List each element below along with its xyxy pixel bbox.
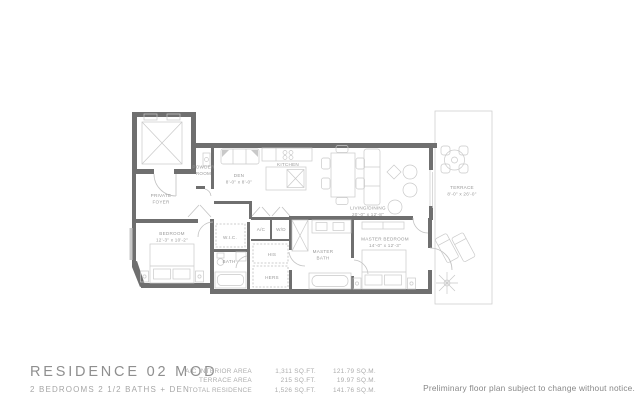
master-bathtub: [309, 273, 351, 289]
area-row: TOTAL RESIDENCE 1,526 SQ.FT. 141.76 SQ.M…: [178, 386, 376, 395]
den-area: DEN 8'-0" x 8'-0": [221, 149, 259, 185]
terrace-plant-icon: [436, 272, 458, 294]
area-sqm: 19.97 SQ.M.: [316, 376, 376, 385]
terrace-door-arc: [430, 248, 452, 270]
corridor-door-leaf: [188, 205, 199, 217]
bed: [150, 244, 194, 283]
living-dining-area: LIVING/DINING 20'-0" x 12'-8": [322, 146, 418, 218]
master-bedroom-dims: 14'-0" x 12'-3": [369, 243, 401, 248]
double-vanity: [312, 220, 351, 233]
master-bedroom-label: MASTER BEDROOM: [361, 237, 409, 242]
bedroom-window: [130, 228, 133, 260]
area-sqm: 141.76 SQ.M.: [316, 386, 376, 395]
his-label: HIS: [268, 252, 276, 257]
wd-closet-label: W/D: [276, 227, 286, 232]
terrace-table-set: [441, 146, 468, 173]
powder-label-2: ROOM: [196, 171, 211, 176]
foyer-label-2: FOYER: [152, 200, 170, 205]
master-bedroom-area: MASTER BEDROOM 14'-0" x 12'-3": [353, 222, 416, 289]
area-label: TOTAL RESIDENCE: [178, 386, 252, 395]
den-sofa-pillow: [222, 150, 229, 157]
area-sqm: 121.79 SQ.M.: [316, 367, 376, 376]
bath-door-arc: [236, 256, 247, 268]
wic-label: W.I.C.: [223, 235, 237, 240]
area-table: A/C INTERIOR AREA 1,311 SQ.FT. 121.79 SQ…: [178, 367, 376, 395]
closet-door-leaf: [282, 207, 290, 216]
residence-subtitle: 2 BEDROOMS 2 1/2 BATHS + DEN: [30, 385, 190, 394]
side-table: [387, 165, 401, 179]
dresser: [362, 222, 404, 229]
area-label: TERRACE AREA: [178, 376, 252, 385]
master-bath-label-1: MASTER: [313, 249, 334, 254]
sofa: [364, 149, 380, 205]
terrace-outline: [435, 111, 492, 304]
terrace-label: TERRACE: [450, 185, 474, 190]
master-bath-door-arc: [289, 252, 305, 266]
terrace-lounge-chairs: [435, 226, 476, 269]
his-hers-closets: HIS HERS: [253, 244, 288, 287]
master-bath-area: MASTER BATH: [292, 220, 351, 289]
shower: [292, 220, 308, 251]
master-bed: [362, 250, 406, 289]
closet-door-leaf: [272, 207, 280, 216]
wic-area: W.I.C.: [216, 224, 245, 247]
hers-label: HERS: [265, 275, 279, 280]
den-sofa-pillow: [251, 150, 258, 157]
powder-door-arc: [205, 189, 211, 196]
floorplan-drawing: TERRACE 8'-0" x 26'-0": [0, 0, 640, 414]
closet-door-leaf: [252, 207, 260, 216]
kitchen-area: KITCHEN: [262, 148, 312, 190]
sink-icon: [287, 170, 304, 188]
terrace-area: TERRACE 8'-0" x 26'-0": [435, 111, 492, 304]
elevator-cab-icon: [142, 122, 182, 164]
disclaimer-text: Preliminary floor plan subject to change…: [423, 383, 635, 393]
bedroom-dims: 12'-3" x 10'-2": [156, 238, 188, 243]
bedroom-label: BEDROOM: [159, 231, 185, 236]
closet-door-leaf: [262, 207, 270, 216]
area-row: A/C INTERIOR AREA 1,311 SQ.FT. 121.79 SQ…: [178, 367, 376, 376]
dining-table-set: [322, 146, 365, 205]
den-dims: 8'-0" x 8'-0": [226, 180, 253, 185]
ac-closet-label: A/C: [257, 227, 266, 232]
foyer-area: PRIVATE FOYER: [151, 193, 172, 205]
master-bath-label-2: BATH: [317, 256, 330, 261]
area-sqft: 1,311 SQ.FT.: [252, 367, 316, 376]
armchairs: [388, 165, 417, 214]
bedroom-area: BEDROOM 12'-3" x 10'-2": [141, 231, 204, 283]
living-dining-label: LIVING/DINING: [350, 206, 386, 211]
area-label: A/C INTERIOR AREA: [178, 367, 252, 376]
floorplan-page: TERRACE 8'-0" x 26'-0": [0, 0, 640, 414]
den-label: DEN: [234, 173, 244, 178]
powder-label-1: POWDER: [192, 165, 215, 170]
elevator-core: [132, 112, 196, 174]
kitchen-island: [266, 167, 306, 190]
bathtub: [215, 272, 246, 288]
corridor-door-leaf: [200, 205, 211, 217]
area-row: TERRACE AREA 215 SQ.FT. 19.97 SQ.M.: [178, 376, 376, 385]
bath-area: BATH: [215, 252, 246, 288]
kitchen-counter: [262, 148, 312, 161]
foyer-label-1: PRIVATE: [151, 193, 172, 198]
living-dining-dims: 20'-0" x 12'-8": [352, 212, 384, 217]
area-sqft: 215 SQ.FT.: [252, 376, 316, 385]
terrace-dims: 8'-0" x 26'-0": [447, 192, 476, 197]
kitchen-label: KITCHEN: [277, 162, 299, 167]
stove-icon: [283, 151, 293, 160]
bath-label: BATH: [223, 259, 236, 264]
master-entry-door-arc: [413, 218, 428, 233]
area-sqft: 1,526 SQ.FT.: [252, 386, 316, 395]
